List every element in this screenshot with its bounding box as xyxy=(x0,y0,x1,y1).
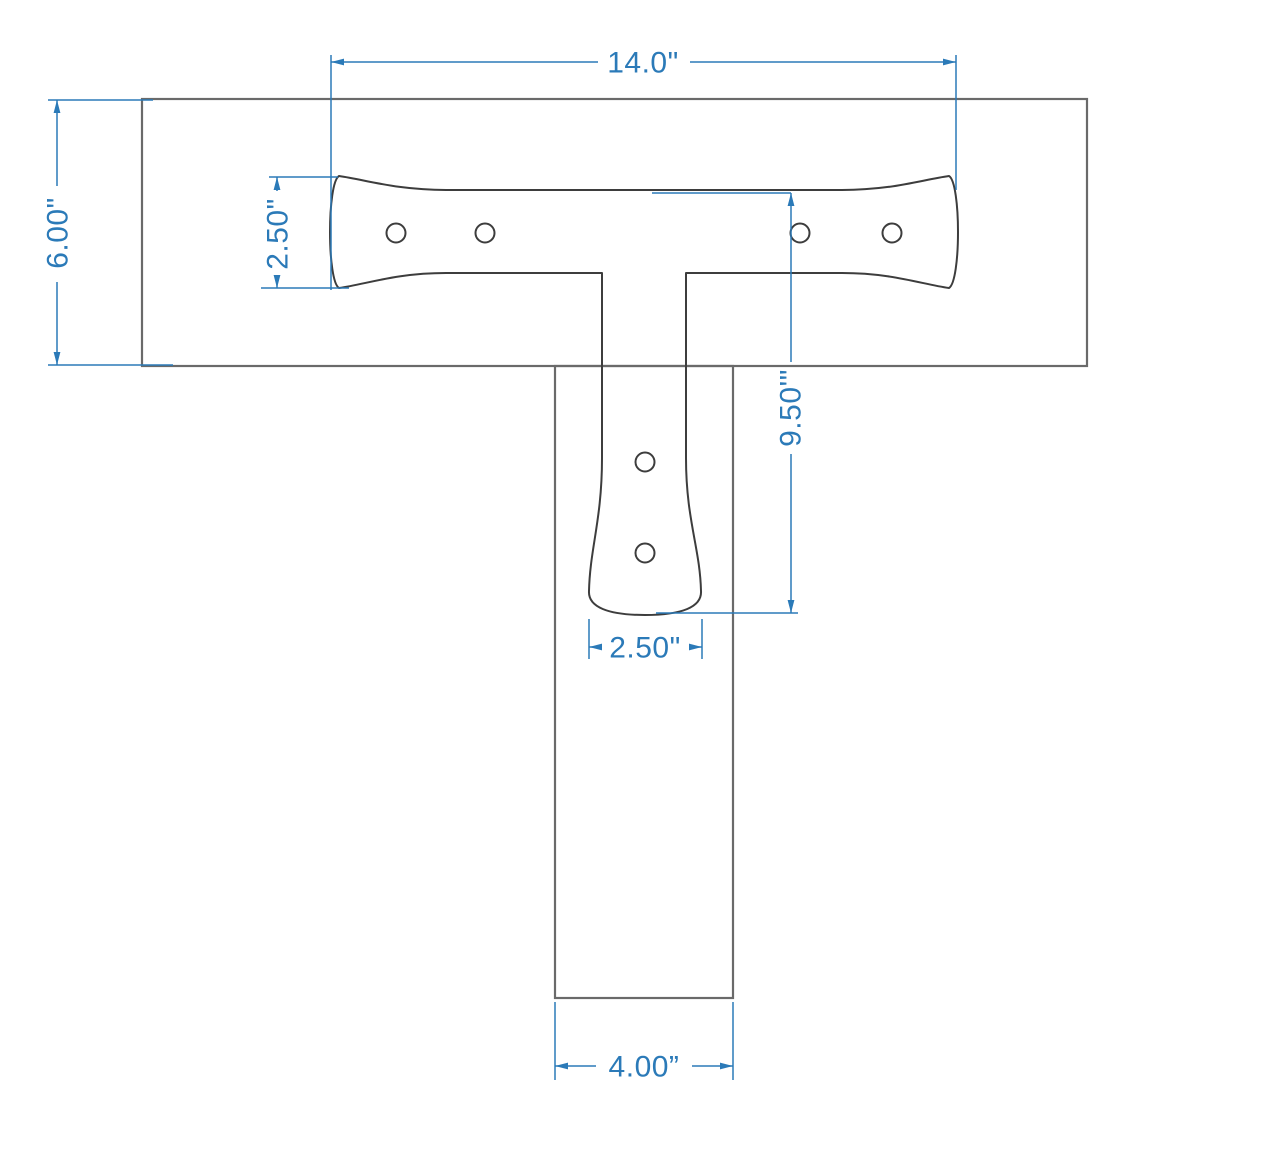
arrow-post-width-left xyxy=(555,1063,568,1070)
arrow-plate-vertical-top xyxy=(788,193,795,206)
arrow-plate-width-right xyxy=(943,59,956,66)
arrow-plate-width-left xyxy=(331,59,344,66)
dimension-label-post-width: 4.00” xyxy=(609,1051,680,1084)
arrow-leg-width-left xyxy=(589,644,602,651)
bolt-hole-strap-3 xyxy=(791,224,810,243)
bolt-hole-strap-4 xyxy=(883,224,902,243)
dimension-label-plate-end-height: 2.50" xyxy=(262,198,295,270)
arrow-leg-width-right xyxy=(689,644,702,651)
plate-group xyxy=(330,176,958,615)
dimension-label-plate-vertical-length: 9.50'" xyxy=(775,369,808,447)
arrow-plate-vertical-bottom xyxy=(788,600,795,613)
bolt-hole-strap-2 xyxy=(476,224,495,243)
arrow-post-width-right xyxy=(720,1063,733,1070)
bolt-hole-strap-1 xyxy=(387,224,406,243)
t-plate-outline xyxy=(330,176,958,615)
dimension-label-plate-width: 14.0" xyxy=(607,47,679,80)
t-bracket-drawing: 14.0" 6.00" 2.50" 9.50'" 2.50" 4.00” xyxy=(0,0,1262,1160)
bolt-hole-leg-2 xyxy=(636,544,655,563)
dimension-label-beam-depth: 6.00" xyxy=(42,197,75,269)
arrow-plate-end-top xyxy=(274,177,281,190)
bolt-hole-leg-1 xyxy=(636,453,655,472)
dimension-arrowheads xyxy=(54,59,956,1070)
dimension-label-leg-end-width: 2.50" xyxy=(609,632,681,665)
arrow-beam-depth-top xyxy=(54,100,61,113)
drawing-canvas: 14.0" 6.00" 2.50" 9.50'" 2.50" 4.00” xyxy=(0,0,1262,1160)
arrow-plate-end-bottom xyxy=(274,275,281,288)
post-outline xyxy=(555,366,733,998)
dimension-lines xyxy=(48,55,956,1080)
arrow-beam-depth-bottom xyxy=(54,352,61,365)
